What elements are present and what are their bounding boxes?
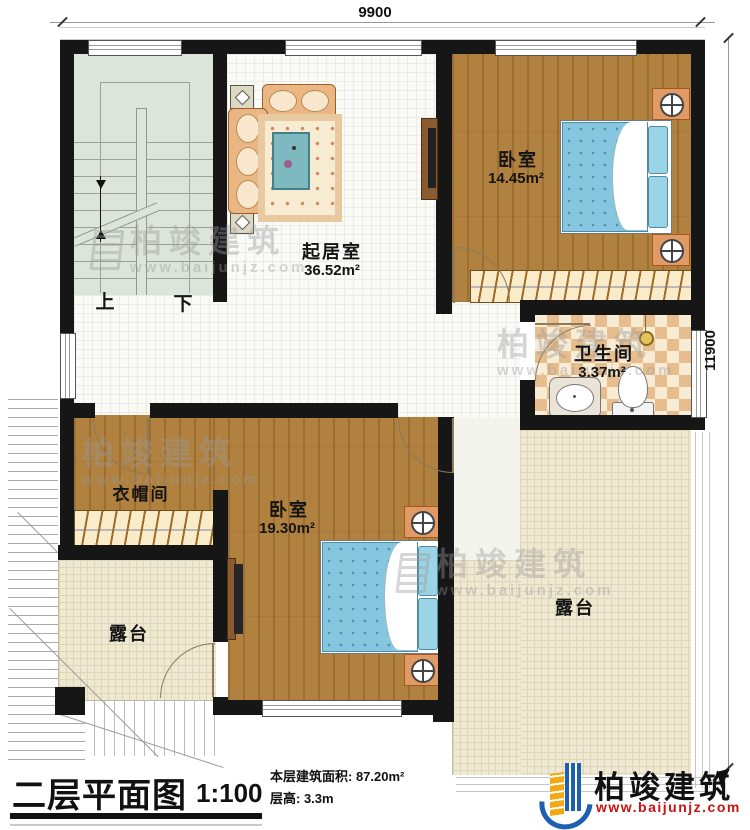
floor-height-text: 层高: 3.3m (270, 788, 334, 807)
terrace-right-floor-lower (452, 560, 521, 775)
wall-stair-living (213, 40, 227, 302)
title-underline-thin (10, 824, 262, 826)
lamp-icon (411, 511, 435, 535)
terrace-right-floor (520, 430, 691, 775)
logo-website: www.baijunjz.com (596, 799, 741, 815)
tv-icon (428, 128, 436, 188)
floor-plan: 9900 11900 (0, 0, 750, 830)
table-decor (292, 146, 296, 150)
sofa-cushion (236, 114, 260, 143)
bedroom2-window (262, 700, 402, 717)
title-underline-thick (10, 813, 262, 819)
cloakroom-label: 衣帽间 (113, 480, 170, 505)
terrace-railing-line (702, 432, 703, 788)
lamp-icon (660, 239, 684, 263)
wall-bathroom-bottom (520, 415, 705, 430)
plan-scale: 1:100 (196, 778, 263, 809)
wall-hall-bottom-a (60, 403, 95, 418)
hallway-window (60, 333, 76, 399)
company-logo (543, 761, 591, 821)
stair-arrow-down-icon (96, 180, 106, 189)
sink (549, 377, 601, 419)
stairwell-floor (74, 54, 213, 295)
nightstand (652, 88, 690, 120)
bedroom1-label: 卧室 (498, 146, 538, 172)
terrace-railing-line (695, 432, 696, 788)
sofa-cushion (301, 90, 329, 112)
bed-pillow (648, 126, 668, 174)
terrace-column (55, 687, 85, 715)
nightstand (652, 234, 690, 266)
coffee-table (272, 132, 310, 190)
stair-up-label: 上 (95, 287, 114, 314)
table-lamp-icon (235, 215, 251, 231)
wall-bathroom-left-upper (520, 300, 535, 322)
lamp-icon (660, 93, 684, 117)
walkway-floor (452, 418, 520, 560)
sink-drain-icon (573, 395, 576, 398)
right-dimension-label: 11900 (702, 330, 719, 371)
plan-title: 二层平面图 (12, 768, 187, 817)
hallway-floor (74, 295, 520, 418)
living-room-area: 36.52m² (304, 262, 360, 279)
bed-pillow (648, 176, 668, 228)
table-decor (284, 160, 292, 168)
wall-bathroom-top (520, 300, 705, 315)
sofa-cushion (236, 147, 260, 176)
top-dimension-line (50, 22, 715, 23)
shower-head-icon (639, 331, 654, 346)
nightstand (404, 506, 440, 538)
top-dimension-label: 9900 (340, 4, 410, 21)
terrace-left-label: 露台 (109, 620, 149, 646)
bedroom1-window (495, 40, 637, 56)
bathroom-area: 3.37m² (578, 364, 626, 381)
lamp-icon (411, 659, 435, 683)
bed-sheet-fold (612, 122, 647, 230)
stair-arrow-up-icon (96, 230, 106, 239)
stairwell-window (88, 40, 182, 56)
wall-left (60, 40, 74, 560)
cloakroom-bedroom2-passage-floor (213, 415, 228, 492)
sofa-cushion (236, 180, 260, 209)
wall-bedroom2-left-upper (213, 490, 228, 642)
bedroom2-label: 卧室 (269, 496, 309, 522)
bed-sheet-fold (384, 542, 417, 650)
stair-down-label: 下 (173, 289, 192, 316)
bed-pillow (418, 598, 438, 650)
living-room-window (285, 40, 422, 56)
bathroom-label: 卫生间 (574, 340, 634, 366)
logo-building-front (550, 772, 564, 816)
bed-pillow (418, 546, 438, 596)
terrace-railing-line (709, 432, 710, 788)
side-table (230, 85, 254, 109)
toilet-button-icon (630, 408, 634, 412)
wall-cloakroom-bottom (58, 545, 215, 560)
nightstand (404, 654, 440, 686)
sofa-cushion (269, 90, 297, 112)
sink-basin (556, 384, 594, 412)
bedroom2-area: 19.30m² (259, 520, 315, 537)
cloakroom-closet (74, 510, 215, 549)
floor-area-text: 本层建筑面积: 87.20m² (270, 766, 404, 785)
right-dimension-line (728, 38, 729, 772)
stair-rail (136, 108, 147, 296)
bedroom1-area: 14.45m² (488, 170, 544, 187)
wall-hall-bottom-b (150, 403, 398, 418)
table-lamp-icon (235, 90, 251, 106)
wall-bedroom2-bottom-corner (433, 700, 454, 722)
living-room-label: 起居室 (302, 238, 362, 264)
window-sill-band (60, 27, 705, 40)
terrace-right-label: 露台 (555, 594, 595, 620)
logo-building-back (565, 763, 581, 811)
wall-bedroom1-left (436, 40, 452, 314)
tv-icon (234, 564, 243, 634)
